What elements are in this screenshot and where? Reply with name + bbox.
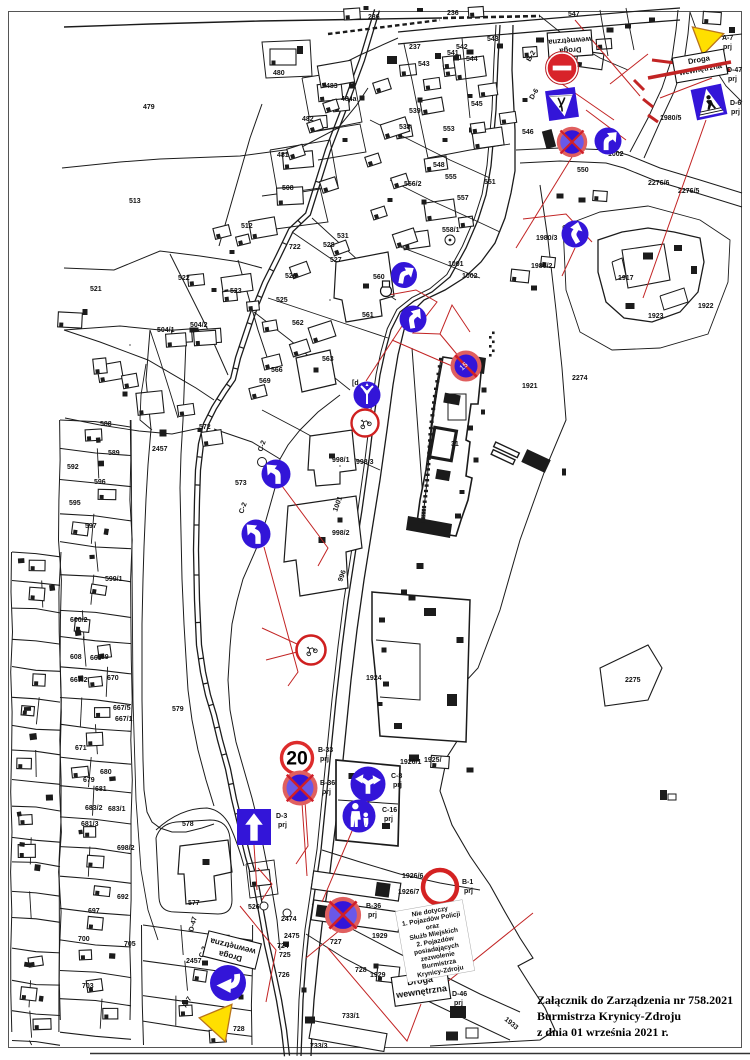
svg-text:667/2: 667/2 <box>70 677 88 684</box>
svg-text:1926/6: 1926/6 <box>402 873 424 880</box>
svg-text:543: 543 <box>418 61 430 68</box>
svg-text:724: 724 <box>277 943 289 950</box>
svg-text:508: 508 <box>282 185 294 192</box>
svg-text:562: 562 <box>292 320 304 327</box>
svg-text:727: 727 <box>330 939 342 946</box>
svg-text:1002: 1002 <box>462 273 478 280</box>
svg-text:1917: 1917 <box>618 275 634 282</box>
svg-text:551: 551 <box>484 179 496 186</box>
svg-text:513: 513 <box>129 198 141 205</box>
svg-text:698/2: 698/2 <box>117 845 135 852</box>
svg-text:589: 589 <box>108 450 120 457</box>
svg-text:B-36: B-36 <box>320 780 335 787</box>
svg-text:697: 697 <box>88 908 100 915</box>
svg-text:prj: prj <box>384 816 393 823</box>
svg-text:597: 597 <box>85 523 97 530</box>
svg-text:1923: 1923 <box>648 313 664 320</box>
svg-text:2474: 2474 <box>281 916 297 923</box>
svg-text:728: 728 <box>233 1026 245 1033</box>
svg-text:B-1: B-1 <box>462 879 473 886</box>
svg-text:681: 681 <box>95 786 107 793</box>
svg-text:608: 608 <box>70 654 82 661</box>
svg-text:563: 563 <box>322 356 334 363</box>
svg-text:2276/6: 2276/6 <box>648 180 670 187</box>
svg-text:546: 546 <box>522 129 534 136</box>
svg-text:547: 547 <box>568 11 580 18</box>
svg-text:555: 555 <box>445 174 457 181</box>
svg-text:D-3: D-3 <box>276 813 287 820</box>
svg-text:prj: prj <box>464 888 473 895</box>
svg-text:670: 670 <box>107 675 119 682</box>
svg-text:553: 553 <box>443 126 455 133</box>
svg-text:539: 539 <box>409 108 421 115</box>
svg-text:236: 236 <box>447 10 459 17</box>
svg-text:725: 725 <box>279 952 291 959</box>
svg-text:548: 548 <box>433 162 445 169</box>
svg-text:D-47: D-47 <box>727 67 742 74</box>
svg-text:1924: 1924 <box>366 675 382 682</box>
svg-text:A-7: A-7 <box>722 35 733 42</box>
svg-text:prj: prj <box>723 44 732 51</box>
svg-text:2457: 2457 <box>186 958 202 965</box>
svg-text:504/1: 504/1 <box>157 327 175 334</box>
svg-text:733/3: 733/3 <box>310 1043 328 1050</box>
svg-text:557: 557 <box>457 195 469 202</box>
svg-text:541: 541 <box>447 50 459 57</box>
svg-text:705: 705 <box>124 941 136 948</box>
svg-text:528: 528 <box>323 242 335 249</box>
svg-text:D-6: D-6 <box>730 100 741 107</box>
svg-text:588: 588 <box>100 421 112 428</box>
svg-text:572: 572 <box>199 424 211 431</box>
svg-text:1929: 1929 <box>372 933 388 940</box>
svg-text:20: 20 <box>286 748 308 770</box>
svg-text:prj: prj <box>322 789 331 796</box>
svg-text:726: 726 <box>278 972 290 979</box>
svg-text:prj: prj <box>320 756 329 763</box>
svg-text:558/1: 558/1 <box>442 227 460 234</box>
svg-text:483: 483 <box>326 83 338 90</box>
svg-text:504/2: 504/2 <box>190 322 208 329</box>
svg-text:569: 569 <box>259 378 271 385</box>
svg-text:484a: 484a <box>341 96 357 103</box>
svg-text:579: 579 <box>172 706 184 713</box>
svg-text:522: 522 <box>178 275 190 282</box>
svg-text:2475: 2475 <box>284 933 300 940</box>
svg-text:525: 525 <box>276 297 288 304</box>
svg-text:482: 482 <box>302 116 314 123</box>
svg-text:550: 550 <box>577 167 589 174</box>
svg-text:531: 531 <box>337 233 349 240</box>
svg-text:523: 523 <box>230 288 242 295</box>
svg-text:998/3: 998/3 <box>356 459 374 466</box>
svg-text:481: 481 <box>277 152 289 159</box>
svg-text:998/2: 998/2 <box>332 530 350 537</box>
svg-text:1926/7: 1926/7 <box>398 889 420 896</box>
svg-text:526: 526 <box>248 904 260 911</box>
svg-text:728: 728 <box>355 967 367 974</box>
svg-text:237: 237 <box>409 44 421 51</box>
svg-text:Burmistrza Krynicy-Zdroju: Burmistrza Krynicy-Zdroju <box>537 1009 681 1023</box>
svg-text:679: 679 <box>83 777 95 784</box>
svg-text:prj: prj <box>454 1000 463 1007</box>
svg-text:692: 692 <box>117 894 129 901</box>
svg-text:1926/1: 1926/1 <box>400 759 422 766</box>
svg-text:1922: 1922 <box>698 303 714 310</box>
svg-text:prj: prj <box>393 782 402 789</box>
svg-text:480: 480 <box>273 70 285 77</box>
svg-text:prj: prj <box>728 76 737 83</box>
svg-text:236: 236 <box>368 14 380 21</box>
svg-text:2274: 2274 <box>572 375 588 382</box>
svg-text:722: 722 <box>289 244 301 251</box>
svg-text:560: 560 <box>373 274 385 281</box>
svg-text:1929: 1929 <box>370 972 386 979</box>
svg-text:667/5: 667/5 <box>113 705 131 712</box>
svg-text:prj: prj <box>368 912 377 919</box>
svg-text:681/3: 681/3 <box>81 821 99 828</box>
svg-text:671: 671 <box>75 745 87 752</box>
svg-text:600/2: 600/2 <box>70 617 88 624</box>
svg-text:680: 680 <box>100 769 112 776</box>
svg-text:Załącznik do Zarządzenia nr 75: Załącznik do Zarządzenia nr 758.2021 <box>537 993 733 1007</box>
svg-text:526: 526 <box>285 273 297 280</box>
svg-text:1980/2: 1980/2 <box>531 263 553 270</box>
svg-text:1980/5: 1980/5 <box>660 115 682 122</box>
svg-text:700: 700 <box>78 936 90 943</box>
svg-text:z dnia 01 września 2021 r.: z dnia 01 września 2021 r. <box>537 1025 669 1039</box>
svg-text:544: 544 <box>466 56 478 63</box>
svg-text:703: 703 <box>82 983 94 990</box>
svg-text:C-16: C-16 <box>382 807 397 814</box>
svg-text:B-33: B-33 <box>318 747 333 754</box>
svg-text:527: 527 <box>330 257 342 264</box>
svg-text:C-8: C-8 <box>391 773 402 780</box>
svg-text:538: 538 <box>399 124 411 131</box>
svg-text:D-46: D-46 <box>452 991 467 998</box>
svg-text:667/1: 667/1 <box>115 716 133 723</box>
svg-text:521: 521 <box>90 286 102 293</box>
svg-text:578: 578 <box>182 821 194 828</box>
svg-text:545: 545 <box>471 101 483 108</box>
svg-text:2457: 2457 <box>152 446 168 453</box>
svg-text:1921: 1921 <box>522 383 538 390</box>
svg-text:prj: prj <box>278 822 287 829</box>
svg-text:595: 595 <box>69 500 81 507</box>
svg-text:1980/3: 1980/3 <box>536 235 558 242</box>
svg-text:592: 592 <box>67 464 79 471</box>
svg-text:556/2: 556/2 <box>404 181 422 188</box>
svg-text:1925/: 1925/ <box>424 757 442 764</box>
svg-text:561: 561 <box>362 312 374 319</box>
svg-text:683/1: 683/1 <box>108 806 126 813</box>
svg-text:31: 31 <box>451 441 459 448</box>
svg-text:512: 512 <box>241 223 253 230</box>
svg-text:683/2: 683/2 <box>85 805 103 812</box>
svg-text:577: 577 <box>188 900 200 907</box>
svg-text:566: 566 <box>271 367 283 374</box>
svg-text:573: 573 <box>235 480 247 487</box>
svg-text:1001: 1001 <box>448 261 464 268</box>
svg-text:596: 596 <box>94 479 106 486</box>
svg-text:B-36: B-36 <box>366 903 381 910</box>
svg-text:2275: 2275 <box>625 677 641 684</box>
svg-text:669: 669 <box>97 654 109 661</box>
svg-text:998/1: 998/1 <box>332 457 350 464</box>
svg-text:599/1: 599/1 <box>105 576 123 583</box>
svg-text:prj: prj <box>731 109 740 116</box>
svg-text:479: 479 <box>143 104 155 111</box>
svg-text:543: 543 <box>487 36 499 43</box>
svg-text:733/1: 733/1 <box>342 1013 360 1020</box>
